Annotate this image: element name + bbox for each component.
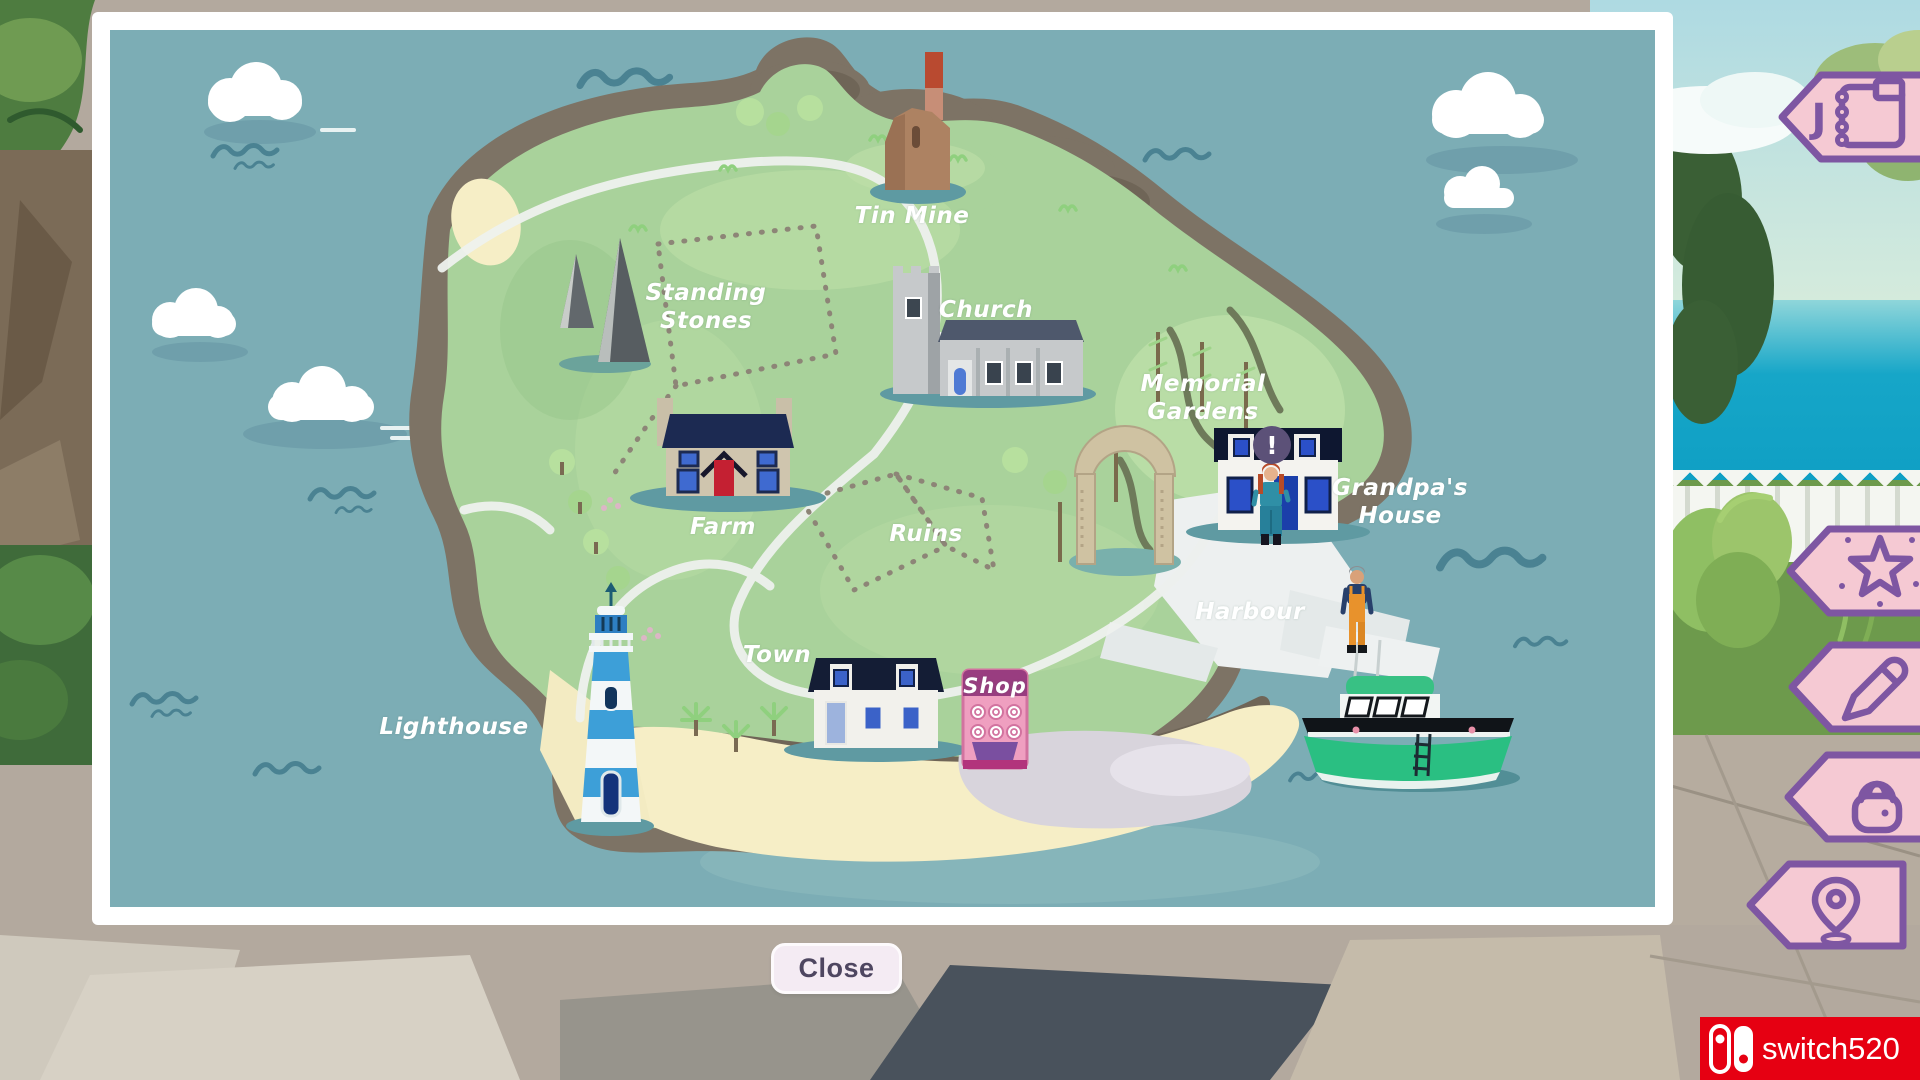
label-lighthouse: Lighthouse [374,713,534,741]
quest-alert-badge: ! [1253,426,1291,464]
label-memorial-gardens: Memorial Gardens [1123,370,1283,426]
achievements-button[interactable] [1786,524,1920,618]
label-ruins: Ruins [866,520,986,548]
island-map-svg [110,30,1655,907]
label-church: Church [926,296,1046,324]
wave-icon [310,489,374,513]
island-map-panel: Tin Mine Standing Stones Church Memorial… [92,12,1673,925]
wave-icon [1515,638,1566,646]
wave-icon [255,764,319,775]
wave-icon [1440,551,1542,568]
wave-icon [1145,150,1209,161]
close-button[interactable]: Close [771,943,902,994]
map-cloud [152,288,248,362]
map-cloud [1436,166,1532,234]
map-cloud [243,366,422,449]
label-farm: Farm [663,513,783,541]
bag-button[interactable] [1784,750,1920,844]
label-town: Town [717,641,837,669]
label-harbour: Harbour [1190,598,1310,626]
map-cloud [1426,72,1578,174]
wave-icon [580,71,670,86]
watermark-text: switch520 [1762,1031,1900,1067]
wave-icon [132,694,196,717]
game-screen: Tin Mine Standing Stones Church Memorial… [0,0,1920,1080]
dark-paver [870,965,1345,1080]
island-map: Tin Mine Standing Stones Church Memorial… [110,30,1655,907]
map-pin-button[interactable] [1746,858,1908,952]
label-standing-stones: Standing Stones [626,279,786,335]
wave-icon [213,146,277,169]
shop-sign: Shop [955,674,1035,700]
edit-button[interactable] [1788,640,1920,734]
journal-hotkey-label: J [1798,96,1840,144]
label-tin-mine: Tin Mine [852,202,972,230]
label-grandpas-house: Grandpa's House [1320,474,1480,530]
watermark: switch520 [1700,1017,1920,1080]
switch-logo-icon [1708,1023,1756,1075]
map-cloud [204,62,354,144]
